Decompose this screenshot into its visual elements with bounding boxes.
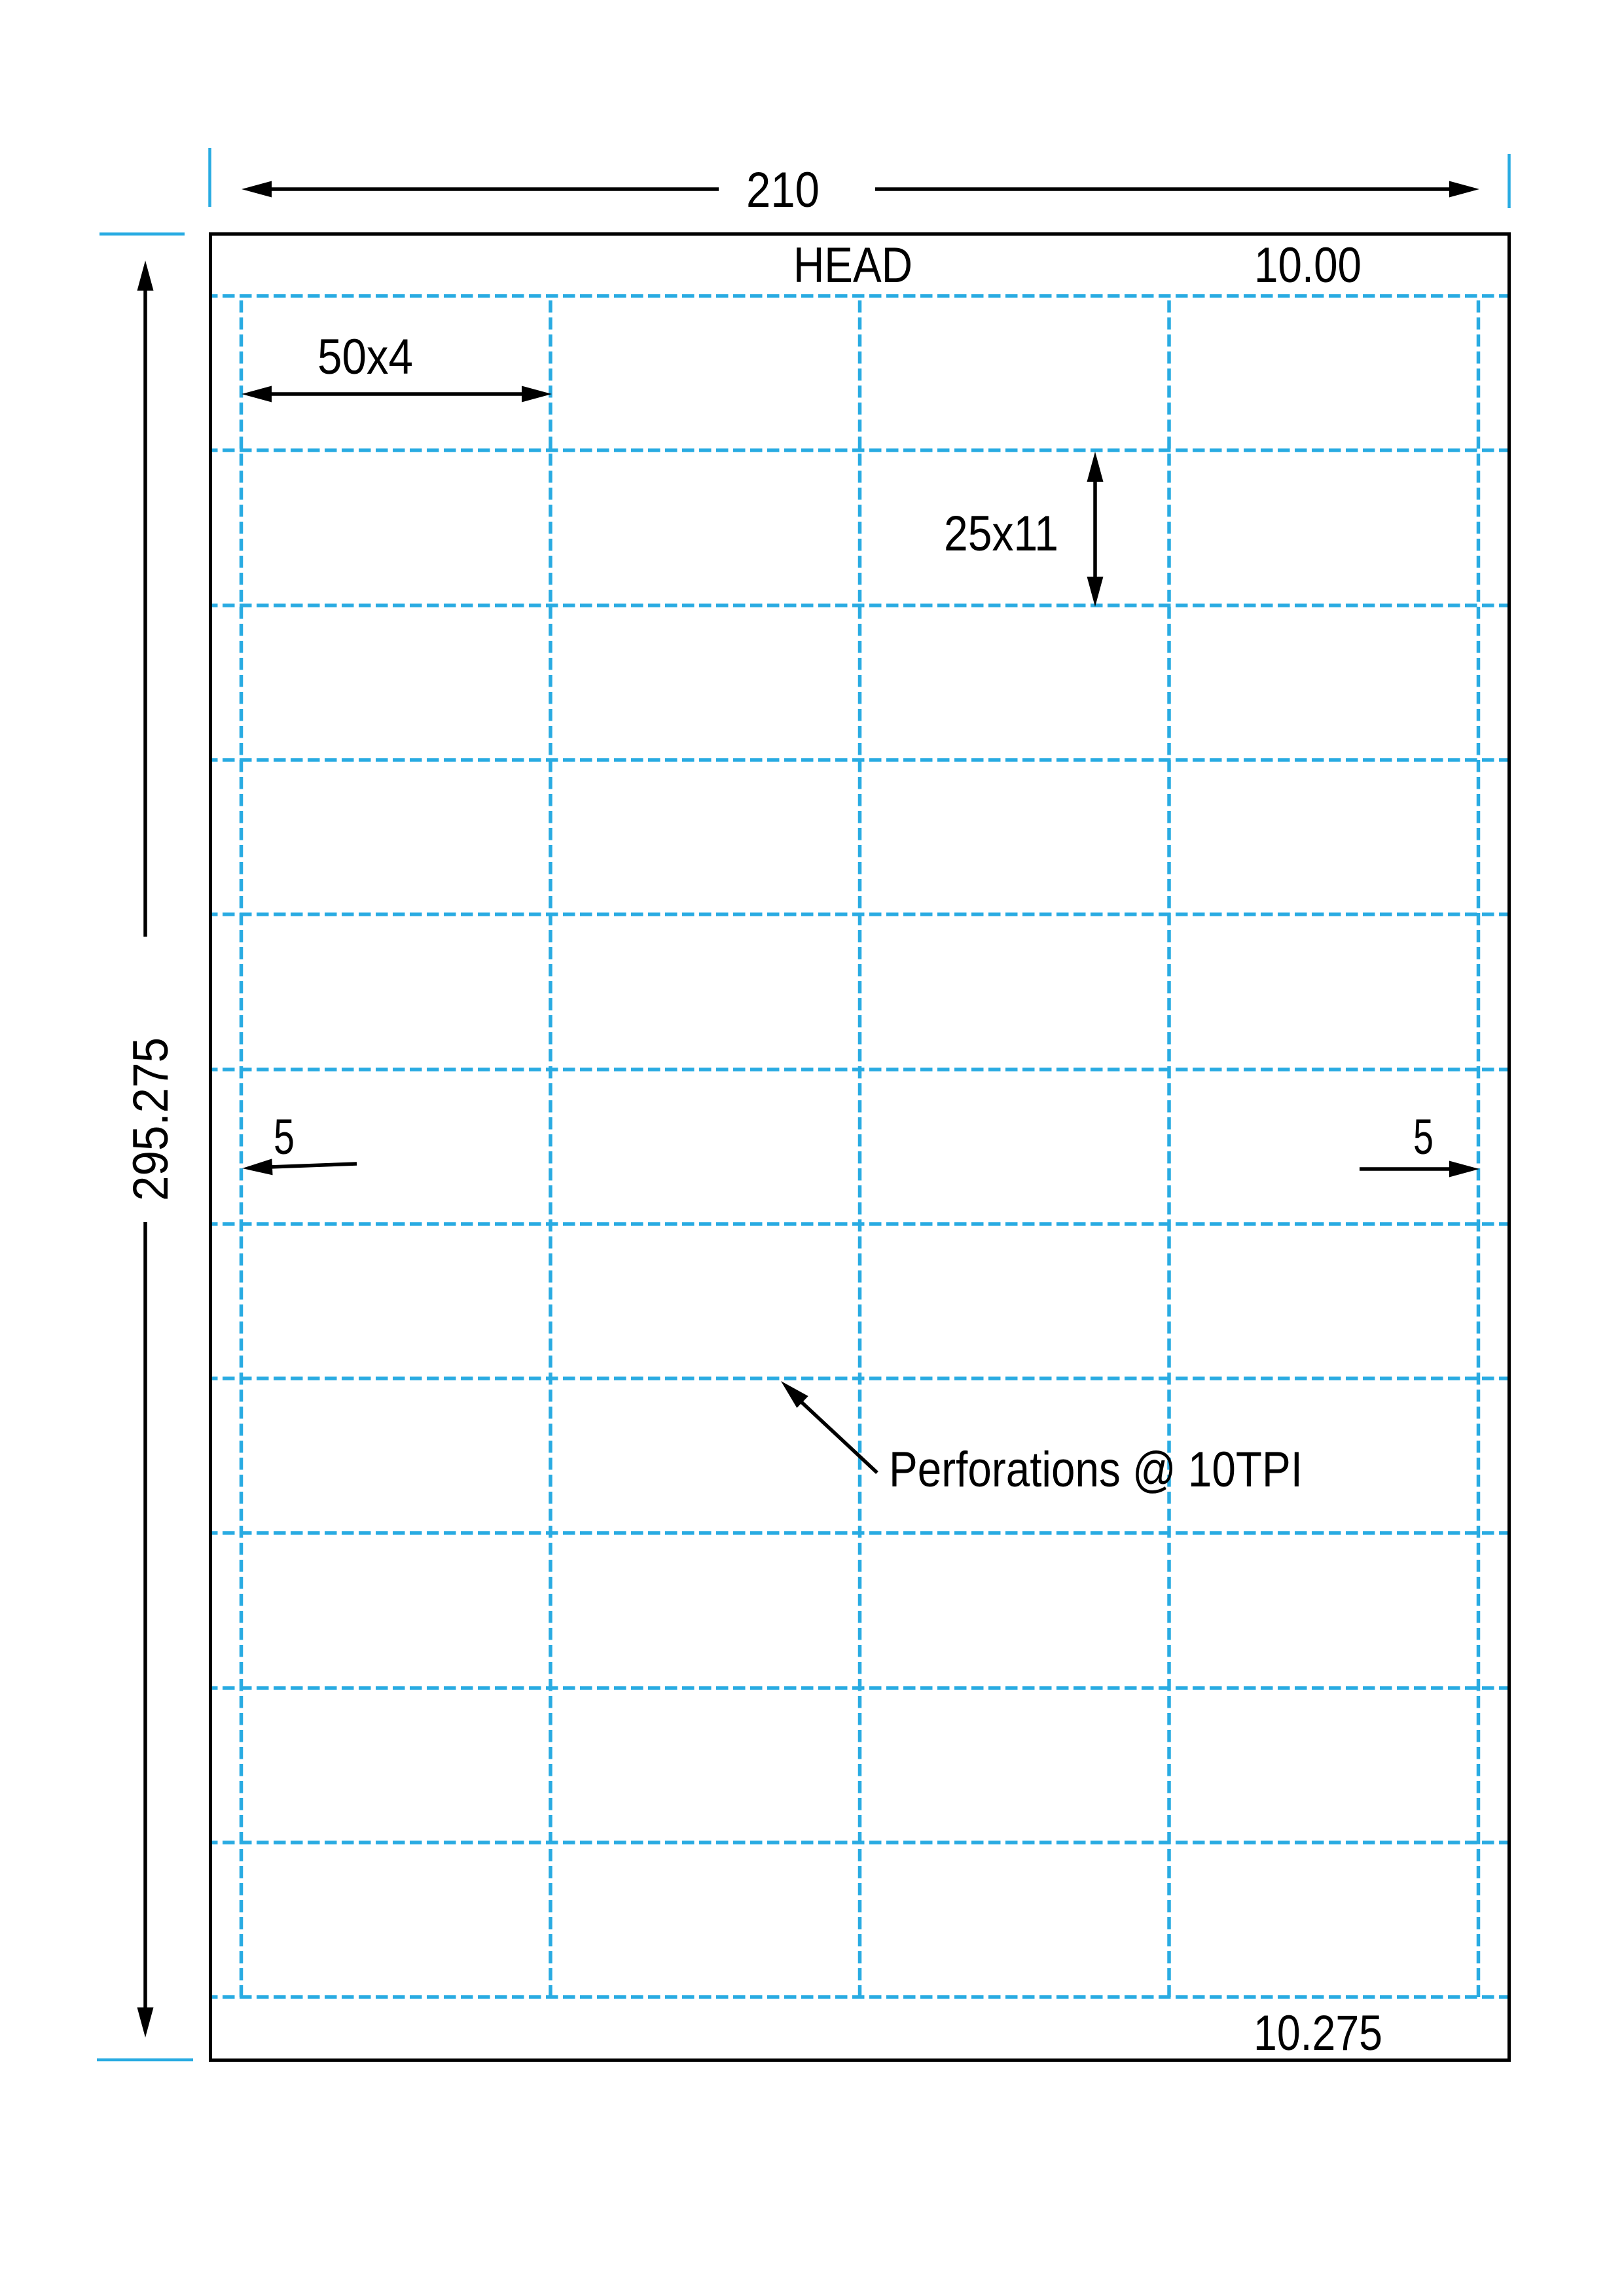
svg-text:5: 5 [274, 1109, 295, 1165]
svg-text:210: 210 [746, 162, 820, 218]
svg-text:5: 5 [1413, 1109, 1434, 1165]
svg-text:10.275: 10.275 [1254, 2005, 1382, 2061]
svg-text:10.00: 10.00 [1254, 238, 1362, 293]
svg-text:HEAD: HEAD [793, 238, 912, 293]
svg-text:Perforations @ 10TPI: Perforations @ 10TPI [889, 1442, 1303, 1498]
svg-text:25x11: 25x11 [944, 506, 1058, 562]
svg-text:50x4: 50x4 [317, 329, 413, 385]
svg-text:295.275: 295.275 [123, 1037, 179, 1201]
